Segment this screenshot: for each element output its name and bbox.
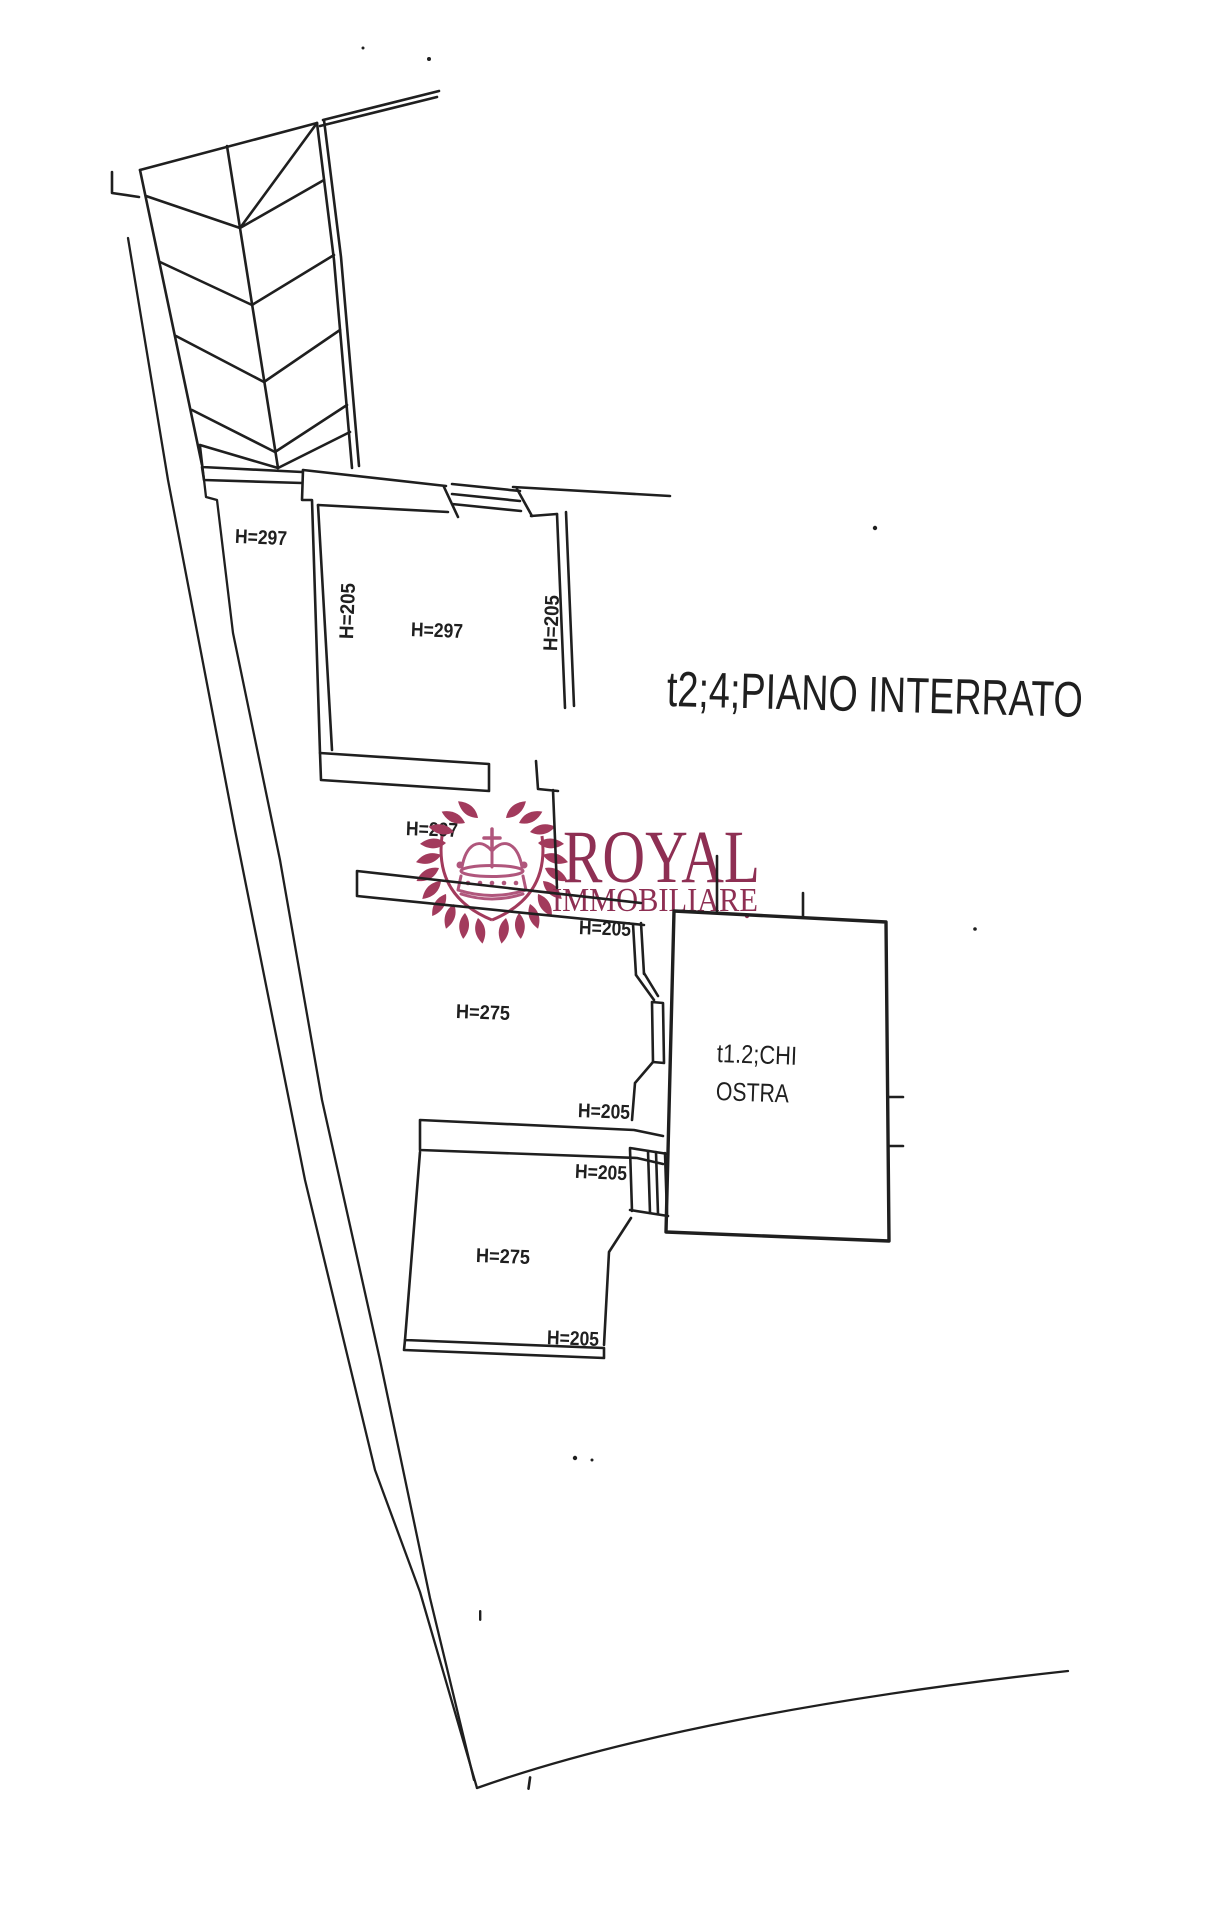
room-chiostra-name-line2: OSTRA — [715, 1076, 790, 1109]
scanned-floor-plan-page: H=297 H=297 H=205 H=205 H=297 H=205 H=27… — [0, 0, 1218, 1920]
label-h275-room-1: H=275 — [456, 1001, 511, 1025]
label-h205-door-lower: H=205 — [575, 1161, 628, 1185]
label-h205-door-middle: H=205 — [578, 1100, 631, 1124]
page-background — [0, 0, 1218, 1920]
label-h297-big-room: H=297 — [411, 619, 464, 643]
label-h205-left-wall: H=205 — [336, 583, 360, 640]
page-title: t2;4;PIANO INTERRATO — [666, 661, 1083, 728]
logo-wordmark: ROYAL IMMOBILIARE — [552, 816, 760, 919]
floor-plan: H=297 H=297 H=205 H=205 H=297 H=205 H=27… — [0, 0, 1218, 1920]
label-h297-upper-left: H=297 — [235, 526, 288, 550]
label-h275-room-2: H=275 — [476, 1245, 531, 1269]
room-chiostra-name-line1: t1.2;CHI — [716, 1038, 797, 1071]
